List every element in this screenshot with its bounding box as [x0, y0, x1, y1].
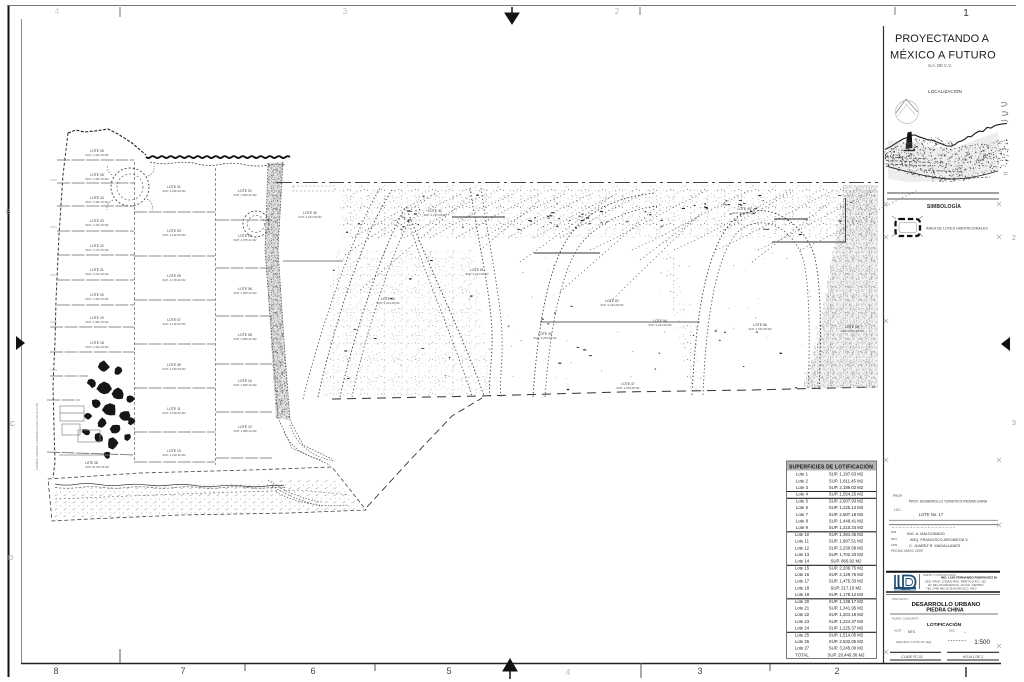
- svg-text:SUP. 1,341.95 M2: SUP. 1,341.95 M2: [829, 606, 864, 611]
- svg-text:Lote 8: Lote 8: [796, 519, 809, 524]
- svg-text:APR.: APR.: [891, 543, 898, 547]
- svg-text:Lote 22: Lote 22: [795, 612, 810, 617]
- svg-text:SUP. 1,472.15 M2: SUP. 1,472.15 M2: [85, 248, 109, 252]
- svg-text:PLANO: CONJUNTO: PLANO: CONJUNTO: [892, 617, 919, 621]
- svg-text:Lote 27: Lote 27: [795, 646, 810, 651]
- svg-text:SUP. 3,224.08 M2: SUP. 3,224.08 M2: [600, 303, 624, 307]
- svg-text:MÉXICO A FUTURO: MÉXICO A FUTURO: [890, 48, 996, 61]
- svg-text:LOCALIZACIÓN: LOCALIZACIÓN: [928, 88, 962, 94]
- svg-text:SUP. 1,138.17 M2: SUP. 1,138.17 M2: [829, 599, 864, 604]
- svg-text:MTS.: MTS.: [908, 630, 916, 634]
- svg-text:LOC.: LOC.: [894, 508, 902, 512]
- svg-text:SUP. 1,475.33 M2: SUP. 1,475.33 M2: [829, 579, 864, 584]
- svg-text:Lote 16: Lote 16: [795, 572, 810, 577]
- svg-text:SUP. 2,129.76 M2: SUP. 2,129.76 M2: [829, 572, 864, 577]
- svg-text:SUP. 3,264.08 M2: SUP. 3,264.08 M2: [748, 327, 772, 331]
- svg-text:Lote 26: Lote 26: [795, 639, 810, 644]
- svg-text:SUP. 2,188.40 M2: SUP. 2,188.40 M2: [162, 189, 186, 193]
- svg-text:PROYECTANDO A: PROYECTANDO A: [895, 33, 990, 45]
- svg-text:REV.: REV.: [891, 537, 898, 541]
- svg-text:SUP. 1,197.63 M2: SUP. 1,197.63 M2: [829, 472, 864, 477]
- svg-text:PROYECTO:: PROYECTO:: [892, 597, 909, 601]
- svg-text:Lote 3: Lote 3: [796, 485, 809, 490]
- svg-text:SUP. 1,492.15 M2: SUP. 1,492.15 M2: [85, 320, 109, 324]
- svg-text:2: 2: [615, 7, 620, 16]
- svg-text:SUP. 2,108.40 M2: SUP. 2,108.40 M2: [162, 411, 186, 415]
- svg-text:SUP. 3,284.08 M2: SUP. 3,284.08 M2: [840, 329, 864, 333]
- svg-text:SUP. 1,997.51 M2: SUP. 1,997.51 M2: [829, 539, 864, 544]
- svg-text:Lote 1: Lote 1: [796, 472, 809, 477]
- svg-text:CLAVE PC-02: CLAVE PC-02: [901, 655, 923, 659]
- svg-text:SUP. 1,492.15 M2: SUP. 1,492.15 M2: [85, 200, 109, 204]
- svg-text:SUP. 1,875.22 M2: SUP. 1,875.22 M2: [233, 238, 257, 242]
- svg-text:DIB.: DIB.: [891, 530, 897, 534]
- svg-text:2: 2: [834, 666, 839, 676]
- svg-text:Lote 6: Lote 6: [796, 505, 809, 510]
- svg-text:3: 3: [697, 666, 702, 676]
- svg-text:Lote 20: Lote 20: [795, 599, 810, 604]
- svg-text:SUP. 2,189.02 M2: SUP. 2,189.02 M2: [829, 485, 864, 490]
- svg-text:SUP. 2,118.40 M2: SUP. 2,118.40 M2: [162, 322, 185, 326]
- svg-text:SUP. 1,442.15 M2: SUP. 1,442.15 M2: [85, 345, 109, 349]
- svg-text:SUP. 1,885.22 M2: SUP. 1,885.22 M2: [233, 429, 257, 433]
- svg-text:8: 8: [53, 666, 58, 676]
- svg-text:SUP. 3,244.08 M2: SUP. 3,244.08 M2: [298, 215, 322, 219]
- svg-text:6: 6: [310, 666, 315, 676]
- svg-text:Lote 7: Lote 7: [796, 512, 809, 517]
- svg-text:SUP. 1,178.12 M2: SUP. 1,178.12 M2: [829, 592, 864, 597]
- svg-text:SUP. 1,554.25 M2: SUP. 1,554.25 M2: [829, 492, 864, 497]
- svg-text:SUP. 1,462.15 M2: SUP. 1,462.15 M2: [85, 177, 109, 181]
- svg-text:SUP. 1,462.15 M2: SUP. 1,462.15 M2: [85, 297, 109, 301]
- svg-text:Lote 10: Lote 10: [795, 532, 810, 537]
- svg-text:SUP. 3,204.08 M2: SUP. 3,204.08 M2: [376, 301, 400, 305]
- svg-text:PROY. DESARROLLO TURISTICO PIE: PROY. DESARROLLO TURISTICO PIEDRA CHINA: [909, 500, 988, 504]
- svg-text:SUP. 1,412.15 M2: SUP. 1,412.15 M2: [85, 272, 109, 276]
- svg-text:1: 1: [963, 8, 969, 19]
- svg-text:Lote 23: Lote 23: [795, 619, 810, 624]
- svg-text:SUP. 1,702.33 M2: SUP. 1,702.33 M2: [829, 552, 864, 557]
- svg-text:SUP. 2,168.40 M2: SUP. 2,168.40 M2: [162, 367, 186, 371]
- svg-text:SUP. 2,128.40 M2: SUP. 2,128.40 M2: [162, 233, 186, 237]
- svg-text:=: =: [1003, 169, 1008, 178]
- svg-text:SUP. 1,865.22 M2: SUP. 1,865.22 M2: [233, 337, 257, 341]
- svg-text:Lote 11: Lote 11: [795, 539, 810, 544]
- svg-text:1:500: 1:500: [974, 639, 990, 646]
- svg-text:PIEDRA CHINA: PIEDRA CHINA: [926, 608, 964, 614]
- svg-text:FECHA: MAYO 2009: FECHA: MAYO 2009: [891, 549, 923, 553]
- svg-text:Lote 24: Lote 24: [795, 626, 810, 631]
- svg-text:SUP. 2,007.93 M2: SUP. 2,007.93 M2: [829, 498, 864, 503]
- svg-text:SUP. 3,214.08 M2: SUP. 3,214.08 M2: [465, 272, 489, 276]
- svg-text:C. JUAREZ R. MAGALLANES: C. JUAREZ R. MAGALLANES: [909, 544, 961, 548]
- svg-text:Lote 15: Lote 15: [795, 565, 810, 570]
- svg-text:SUP. 2,209.75 M2: SUP. 2,209.75 M2: [829, 565, 864, 570]
- svg-text:C: C: [10, 421, 15, 428]
- svg-text:SUP. 3,224.08 M2: SUP. 3,224.08 M2: [423, 213, 447, 217]
- svg-text:B: B: [6, 209, 11, 216]
- svg-text:SUP. 1,422.15 M2: SUP. 1,422.15 M2: [85, 153, 109, 157]
- svg-text:SUP. 866.92 M2: SUP. 866.92 M2: [831, 559, 863, 564]
- svg-text:SUP. 1,514.05 M2: SUP. 1,514.05 M2: [829, 632, 864, 637]
- svg-text:D: D: [8, 555, 13, 562]
- svg-text:Lote 12: Lote 12: [795, 545, 810, 550]
- svg-text:Lote 25: Lote 25: [795, 632, 810, 637]
- svg-text:SUP. 1,225.37 M2: SUP. 1,225.37 M2: [829, 626, 864, 631]
- svg-text:2: 2: [1012, 235, 1016, 242]
- svg-text:SUP. 2,587.18 M2: SUP. 2,587.18 M2: [829, 512, 864, 517]
- svg-text:SUP. 1,204.18 M2: SUP. 1,204.18 M2: [829, 612, 864, 617]
- svg-text:CAMINO VECINAL A PIEDRA CHINA: CAMINO VECINAL A PIEDRA CHINA COTA 12.50: [35, 403, 39, 470]
- svg-text:SUP. 1,210.34 M2: SUP. 1,210.34 M2: [829, 525, 864, 530]
- svg-text:Lote 4: Lote 4: [796, 492, 809, 497]
- svg-text:Lote 13: Lote 13: [795, 552, 810, 557]
- svg-text:ACOT.: ACOT.: [894, 628, 902, 632]
- svg-text:PROP.: PROP.: [893, 494, 903, 498]
- svg-text:SUP. 1,384.46 M2: SUP. 1,384.46 M2: [829, 532, 864, 537]
- svg-text:SIMBOLOGÍA: SIMBOLOGÍA: [927, 202, 961, 210]
- svg-text:SUP. 2,532.05 M2: SUP. 2,532.05 M2: [829, 639, 864, 644]
- svg-text:S.A. DE C.V.: S.A. DE C.V.: [928, 63, 952, 68]
- svg-text:ARCHIVO: LOTIF-PC.dwg: ARCHIVO: LOTIF-PC.dwg: [896, 640, 932, 644]
- svg-text:Lote 19: Lote 19: [795, 592, 810, 597]
- svg-text:SUP. 2,178.40 M2: SUP. 2,178.40 M2: [162, 278, 186, 282]
- svg-text:LOTE No. 17: LOTE No. 17: [919, 512, 944, 517]
- svg-text:ÁREA DE LOTES HABITACIONALES: ÁREA DE LOTES HABITACIONALES: [926, 227, 988, 231]
- svg-text:SUPERFICIES DE LOTIFICACIÓN: SUPERFICIES DE LOTIFICACIÓN: [789, 463, 873, 471]
- svg-text:SUP. 20,446.36 M2: SUP. 20,446.36 M2: [85, 465, 109, 469]
- svg-text:--: --: [964, 630, 966, 634]
- svg-text:4: 4: [566, 668, 571, 677]
- svg-text:SUP. 217.10 M2: SUP. 217.10 M2: [831, 585, 863, 590]
- svg-text:3: 3: [1012, 420, 1016, 427]
- svg-text:7: 7: [180, 666, 185, 676]
- svg-text:TEL. (744) 482 16 35 ACAPULC: TEL. (744) 482 16 35 ACAPULCO, GRO.: [926, 586, 977, 590]
- svg-text:SUP. 1,225.14 M2: SUP. 1,225.14 M2: [829, 505, 864, 510]
- svg-text:Lote 21: Lote 21: [795, 606, 810, 611]
- svg-text:SUP. 1,422.15 M2: SUP. 1,422.15 M2: [85, 223, 109, 227]
- svg-text:3: 3: [343, 7, 348, 16]
- svg-text:ESC.: ESC.: [949, 628, 956, 632]
- svg-text:SUP. 3,245.00 M2: SUP. 3,245.00 M2: [829, 646, 864, 651]
- svg-text:SUP. 1,825.22 M2: SUP. 1,825.22 M2: [233, 193, 257, 197]
- svg-text:Lote 5: Lote 5: [796, 498, 809, 503]
- svg-text:SUP. 3,204.08 M2: SUP. 3,204.08 M2: [732, 211, 756, 215]
- svg-text:SUP. 3,224.08 M2: SUP. 3,224.08 M2: [648, 323, 672, 327]
- svg-text:SUP. 1,811.45 M2: SUP. 1,811.45 M2: [829, 478, 864, 483]
- svg-text:SUP. 3,254.08 M2: SUP. 3,254.08 M2: [616, 386, 640, 390]
- svg-text:SUP. 20,446.36 M2: SUP. 20,446.36 M2: [828, 652, 866, 657]
- svg-text:Lote 18: Lote 18: [795, 585, 810, 590]
- svg-text:Lote 2: Lote 2: [796, 478, 809, 483]
- svg-text:HOJA 1 DE 2: HOJA 1 DE 2: [963, 655, 983, 659]
- svg-text:Lote 9: Lote 9: [796, 525, 809, 530]
- svg-text:5: 5: [446, 666, 451, 676]
- svg-text:TOTAL: TOTAL: [795, 652, 809, 657]
- svg-text:SUP. 2,128.40 M2: SUP. 2,128.40 M2: [162, 453, 186, 457]
- svg-text:ARQ. FRANCISCO ARCINIEGA V.: ARQ. FRANCISCO ARCINIEGA V.: [910, 538, 969, 542]
- svg-text:Lote 17: Lote 17: [795, 579, 810, 584]
- svg-text:SUP. 1,805.22 M2: SUP. 1,805.22 M2: [233, 291, 257, 295]
- svg-text:SUP. 1,224.37 M2: SUP. 1,224.37 M2: [829, 619, 864, 624]
- svg-text:SUP. 2,239.58 M2: SUP. 2,239.58 M2: [829, 545, 864, 550]
- svg-text:SUP. 1,825.22 M2: SUP. 1,825.22 M2: [233, 383, 257, 387]
- svg-text:4: 4: [55, 7, 60, 16]
- svg-text:Lote 14: Lote 14: [795, 559, 810, 564]
- svg-text:SUP. 1,448.41 M2: SUP. 1,448.41 M2: [829, 519, 864, 524]
- svg-text:ING. A. MALDONADO: ING. A. MALDONADO: [907, 532, 945, 536]
